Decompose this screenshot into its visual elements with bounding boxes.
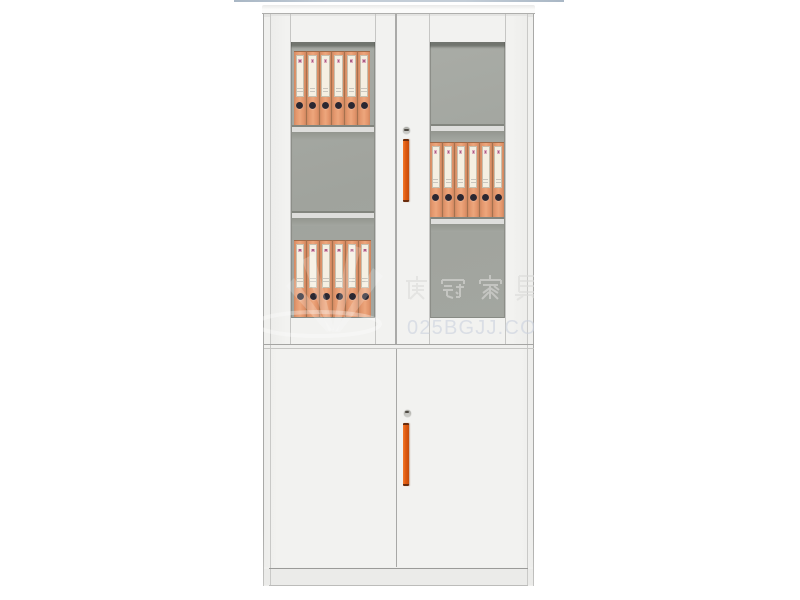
svg-text:025BGJJ.COM: 025BGJJ.COM [407,317,555,339]
